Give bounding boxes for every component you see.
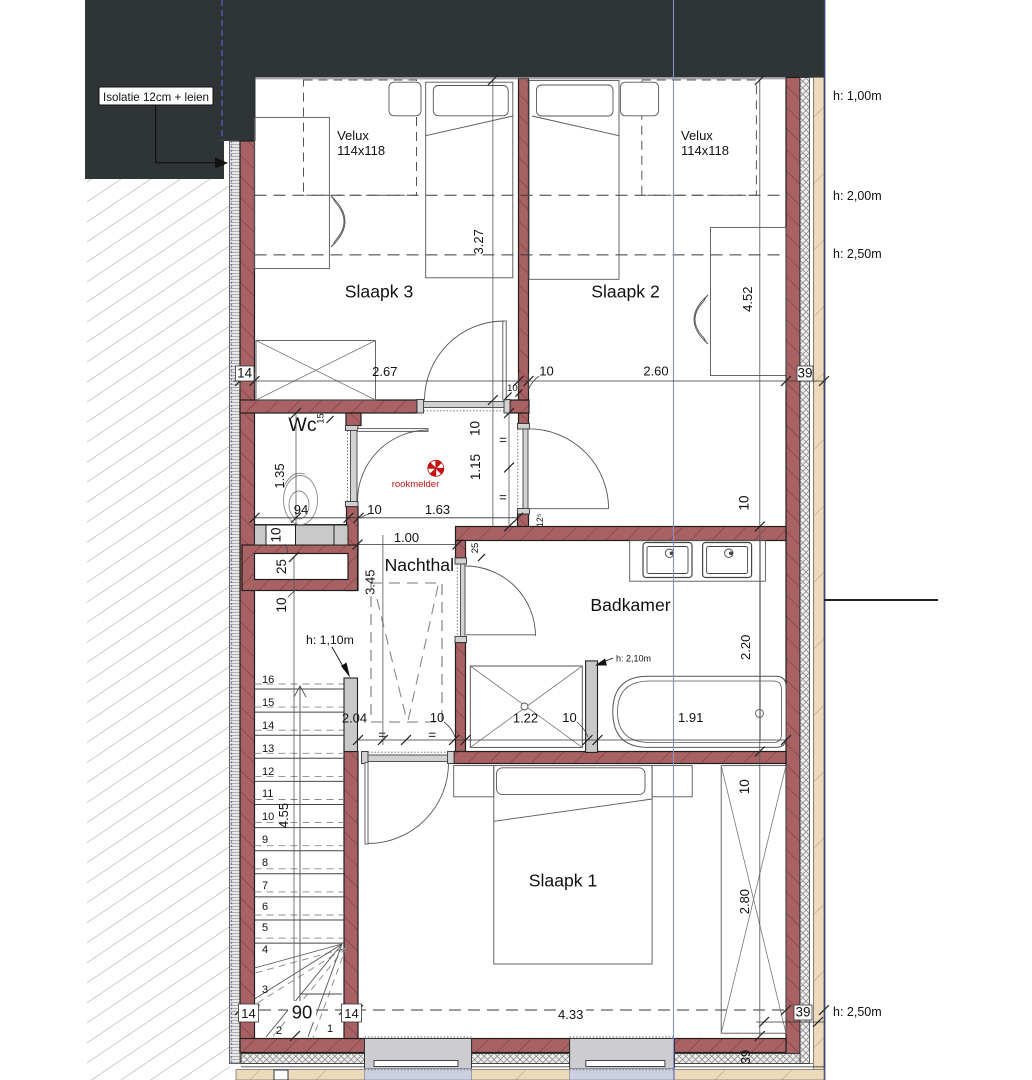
svg-text:4.33: 4.33 <box>558 1007 583 1022</box>
svg-text:2.20: 2.20 <box>738 635 753 660</box>
svg-text:14: 14 <box>237 366 253 381</box>
svg-text:2.04: 2.04 <box>342 711 367 726</box>
svg-text:h: 2,00m: h: 2,00m <box>833 189 882 203</box>
svg-text:5: 5 <box>262 922 268 934</box>
svg-text:39: 39 <box>738 1050 753 1064</box>
svg-text:14: 14 <box>241 1006 255 1021</box>
svg-text:h: 1,10m: h: 1,10m <box>306 633 354 647</box>
svg-text:4.52: 4.52 <box>740 287 755 312</box>
svg-text:10: 10 <box>269 527 284 542</box>
svg-text:2.67: 2.67 <box>372 364 397 379</box>
svg-text:12: 12 <box>262 766 274 778</box>
svg-text:Isolatie 12cm + leien: Isolatie 12cm + leien <box>103 91 209 104</box>
svg-text:1.22: 1.22 <box>513 711 538 726</box>
svg-text:4.55: 4.55 <box>276 803 291 828</box>
svg-text:Slaapk 2: Slaapk 2 <box>591 282 659 302</box>
svg-text:10: 10 <box>539 364 553 379</box>
svg-text:3.27: 3.27 <box>471 229 486 254</box>
svg-text:Slaapk 1: Slaapk 1 <box>529 871 597 891</box>
svg-text:10: 10 <box>468 421 483 436</box>
svg-text:14: 14 <box>344 1006 358 1021</box>
svg-text:10: 10 <box>274 597 289 612</box>
svg-text:h: 2,50m: h: 2,50m <box>833 247 882 261</box>
svg-text:10: 10 <box>737 495 752 510</box>
svg-text:11: 11 <box>262 788 273 800</box>
svg-text:15: 15 <box>262 697 274 709</box>
svg-text:Nachthal: Nachthal <box>385 555 454 575</box>
svg-text:2.60: 2.60 <box>643 364 668 379</box>
svg-text:10: 10 <box>367 502 381 517</box>
svg-text:25: 25 <box>274 559 289 574</box>
svg-text:rookmelder: rookmelder <box>392 479 440 490</box>
svg-text:15: 15 <box>316 413 327 424</box>
svg-text:39: 39 <box>797 366 812 381</box>
svg-text:90: 90 <box>292 1002 313 1023</box>
svg-text:1.00: 1.00 <box>394 530 419 545</box>
svg-text:h: 2,10m: h: 2,10m <box>616 654 651 664</box>
svg-text:10: 10 <box>262 811 274 823</box>
svg-text:1.91: 1.91 <box>678 710 703 725</box>
svg-text:39: 39 <box>795 1005 810 1020</box>
svg-text:1: 1 <box>327 1023 333 1035</box>
svg-text:114x118: 114x118 <box>337 143 385 158</box>
svg-text:7: 7 <box>262 880 268 892</box>
svg-text:1.15: 1.15 <box>468 454 483 480</box>
svg-text:Slaapk 3: Slaapk 3 <box>345 282 414 302</box>
svg-text:2: 2 <box>276 1025 282 1037</box>
svg-text:16: 16 <box>262 674 274 686</box>
svg-text:3: 3 <box>262 984 268 996</box>
svg-text:10: 10 <box>507 383 518 394</box>
svg-text:1.63: 1.63 <box>425 502 450 517</box>
svg-text:94: 94 <box>294 502 308 517</box>
svg-text:Badkamer: Badkamer <box>590 595 670 615</box>
svg-text:4: 4 <box>262 944 268 956</box>
svg-text:Velux: Velux <box>681 128 713 143</box>
svg-text:3.45: 3.45 <box>363 570 378 595</box>
svg-text:h: 2,50m: h: 2,50m <box>833 1005 882 1019</box>
svg-text:h: 1,00m: h: 1,00m <box>833 89 882 103</box>
svg-text:10: 10 <box>562 710 576 725</box>
svg-text:10: 10 <box>430 710 444 725</box>
svg-text:14: 14 <box>262 720 274 732</box>
svg-text:6: 6 <box>262 901 268 913</box>
svg-text:10: 10 <box>737 779 752 794</box>
svg-text:2.80: 2.80 <box>737 889 752 914</box>
svg-text:1.35: 1.35 <box>272 463 287 488</box>
svg-text:9: 9 <box>262 834 268 846</box>
svg-text:25: 25 <box>470 543 481 554</box>
svg-text:13: 13 <box>262 743 274 755</box>
svg-text:12⁵: 12⁵ <box>535 513 545 527</box>
svg-text:114x118: 114x118 <box>681 143 729 158</box>
svg-text:8: 8 <box>262 857 268 869</box>
svg-text:Velux: Velux <box>337 128 369 143</box>
svg-text:Wc: Wc <box>288 414 316 436</box>
